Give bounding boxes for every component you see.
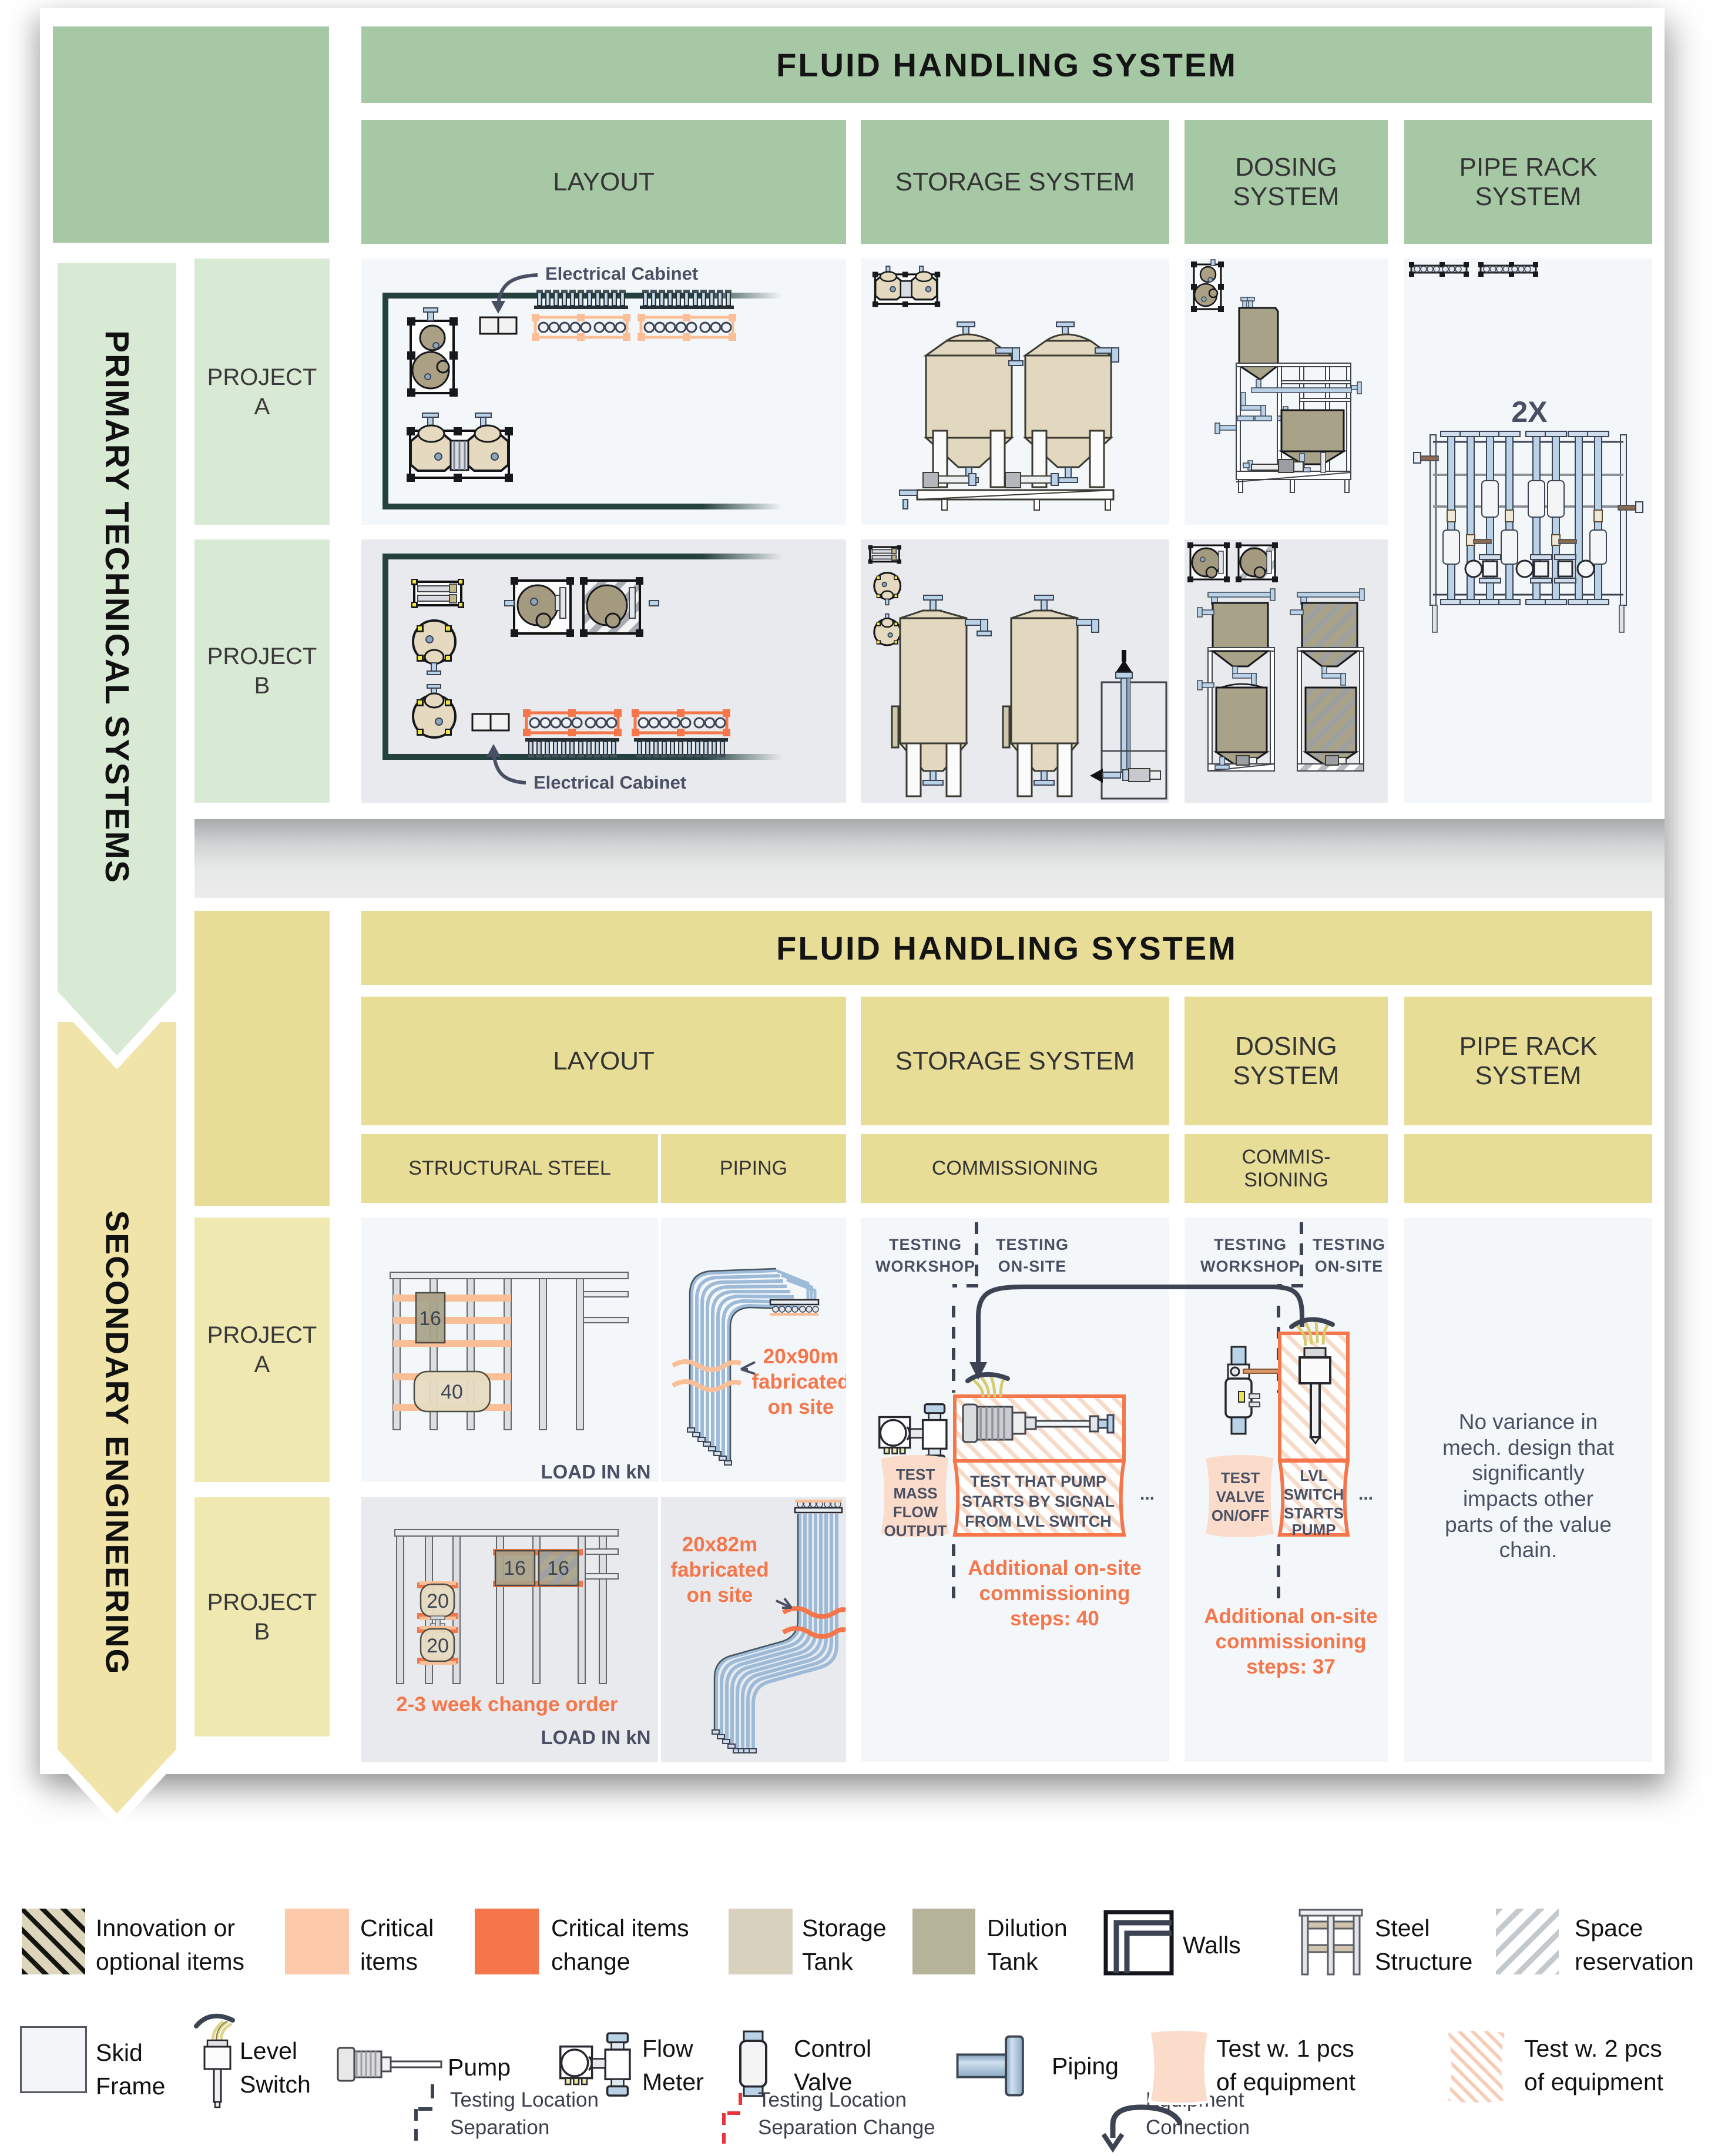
svg-text:TEST THAT PUMP: TEST THAT PUMP xyxy=(970,1473,1106,1490)
svg-text:16: 16 xyxy=(419,1307,441,1330)
svg-text:Additional on-site: Additional on-site xyxy=(968,1557,1142,1580)
svg-text:LOAD IN kN: LOAD IN kN xyxy=(541,1461,650,1482)
svg-text:MASS: MASS xyxy=(893,1484,937,1502)
svg-text:2-3 week change order: 2-3 week change order xyxy=(396,1693,618,1716)
svg-text:Electrical Cabinet: Electrical Cabinet xyxy=(545,263,698,284)
svg-text:LOAD IN kN: LOAD IN kN xyxy=(541,1726,650,1748)
svg-text:...: ... xyxy=(1140,1484,1155,1504)
svg-text:commissioning: commissioning xyxy=(979,1582,1130,1605)
svg-text:20: 20 xyxy=(427,1590,449,1612)
svg-text:steps: 40: steps: 40 xyxy=(1010,1607,1099,1630)
svg-text:Additional on-site: Additional on-site xyxy=(1204,1605,1378,1628)
svg-text:40: 40 xyxy=(441,1381,463,1403)
svg-text:STARTS: STARTS xyxy=(1284,1504,1344,1522)
svg-text:SWITCH: SWITCH xyxy=(1284,1486,1344,1503)
svg-text:20x82m: 20x82m xyxy=(682,1533,757,1556)
svg-text:steps: 37: steps: 37 xyxy=(1246,1655,1336,1678)
svg-text:20x90m: 20x90m xyxy=(763,1345,838,1368)
svg-text:on site: on site xyxy=(768,1396,834,1419)
svg-text:FLOW: FLOW xyxy=(893,1503,938,1521)
svg-text:16: 16 xyxy=(504,1557,526,1580)
svg-text:commissioning: commissioning xyxy=(1216,1630,1367,1653)
svg-text:...: ... xyxy=(1358,1484,1373,1504)
svg-text:2X: 2X xyxy=(1511,395,1547,428)
svg-text:fabricated: fabricated xyxy=(670,1558,769,1581)
svg-text:Electrical Cabinet: Electrical Cabinet xyxy=(533,772,686,793)
svg-text:VALVE: VALVE xyxy=(1216,1488,1265,1505)
svg-text:OUTPUT: OUTPUT xyxy=(884,1522,947,1540)
svg-text:TEST: TEST xyxy=(1221,1469,1260,1487)
svg-text:16: 16 xyxy=(547,1557,569,1580)
svg-text:20: 20 xyxy=(427,1635,449,1657)
svg-text:STARTS BY SIGNAL: STARTS BY SIGNAL xyxy=(962,1493,1115,1510)
svg-text:LVL: LVL xyxy=(1300,1467,1327,1484)
svg-text:on site: on site xyxy=(687,1584,753,1607)
svg-text:PUMP: PUMP xyxy=(1291,1521,1336,1538)
svg-text:fabricated: fabricated xyxy=(751,1370,846,1393)
svg-text:FROM LVL SWITCH: FROM LVL SWITCH xyxy=(965,1513,1111,1530)
svg-text:ON/OFF: ON/OFF xyxy=(1212,1507,1269,1524)
svg-text:TEST: TEST xyxy=(896,1466,935,1483)
